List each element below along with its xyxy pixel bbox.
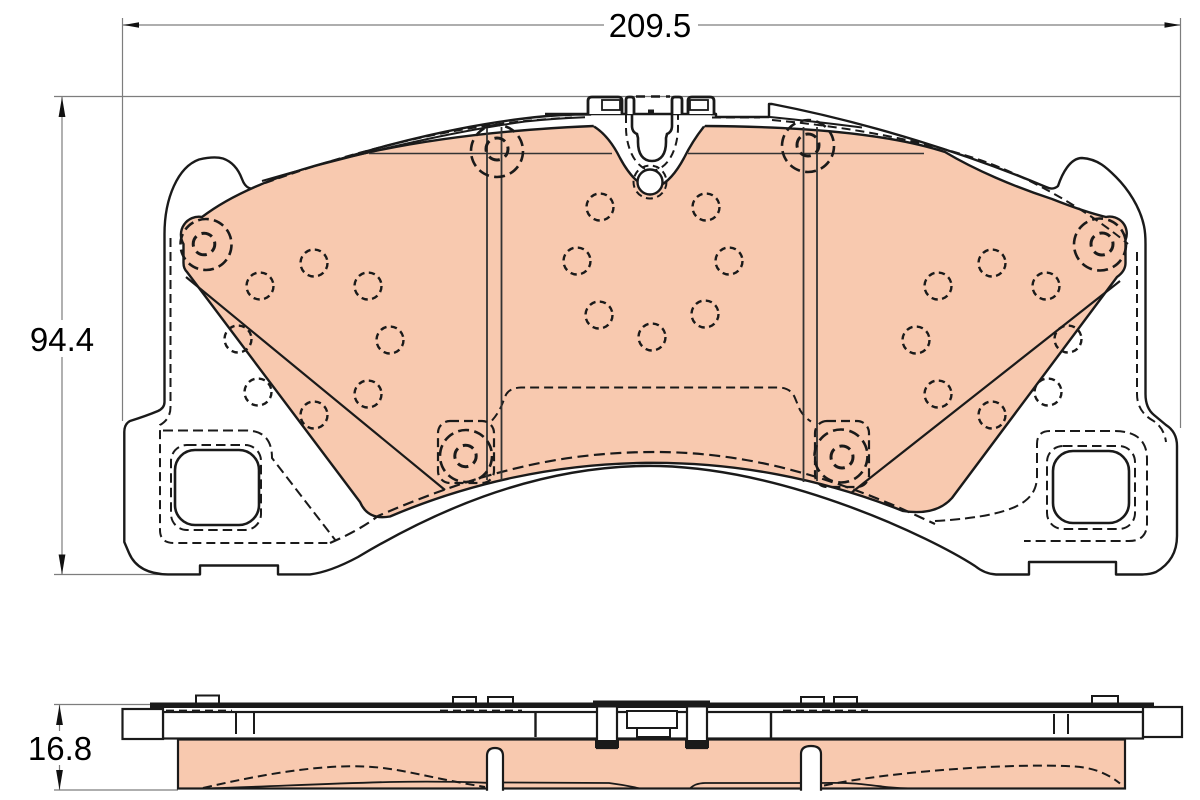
svg-text:209.5: 209.5 [609, 7, 692, 44]
svg-text:94.4: 94.4 [30, 321, 94, 358]
svg-text:16.8: 16.8 [28, 730, 92, 767]
